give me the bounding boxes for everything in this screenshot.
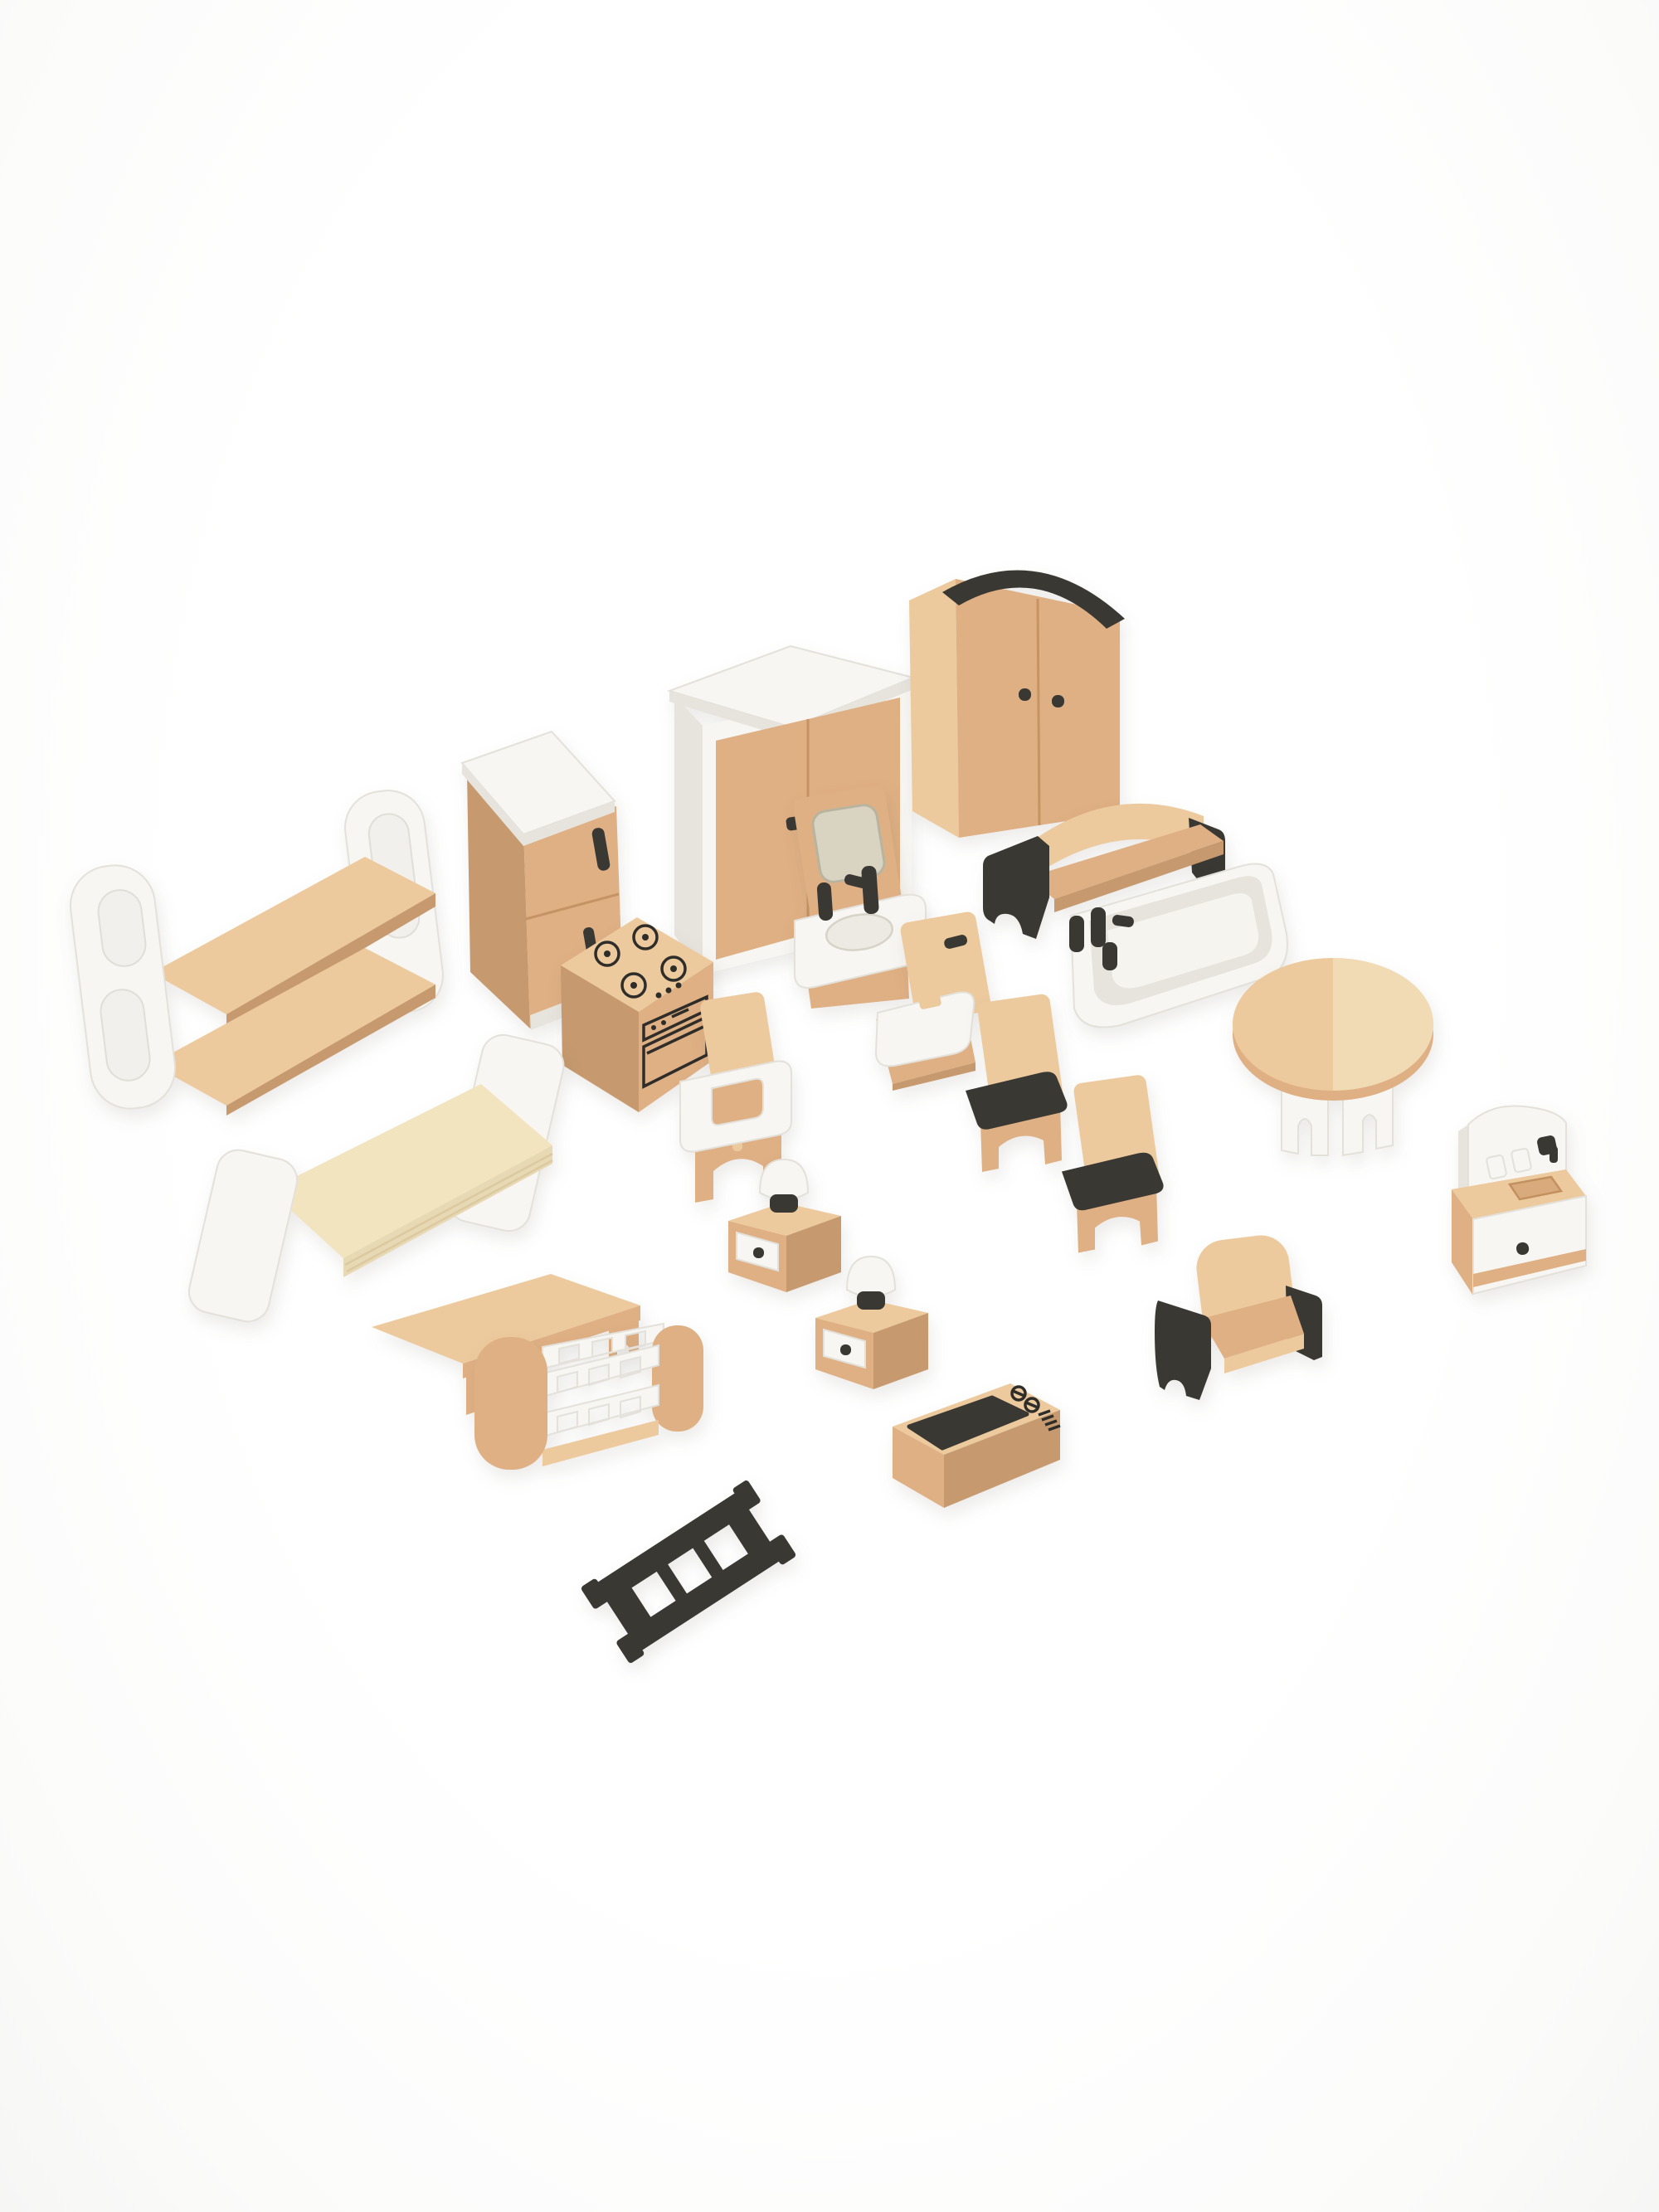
- toy-kitchen-sink: [1440, 1103, 1596, 1300]
- door-knob: [1052, 695, 1064, 707]
- toy-tv: [886, 1375, 1067, 1514]
- lamp-shade: [847, 1257, 895, 1296]
- faucet-spout: [1550, 1146, 1558, 1163]
- toy-nightstand: [810, 1248, 933, 1391]
- tub-knob: [1069, 916, 1084, 952]
- door-knob: [1019, 688, 1031, 701]
- toy-round-table: [1230, 948, 1436, 1159]
- tub-knob: [1102, 942, 1117, 970]
- ladder-graphic: [589, 1491, 788, 1653]
- crib-end: [652, 1325, 703, 1432]
- lamp-base: [770, 1194, 798, 1213]
- sofa-left-end: [983, 836, 1049, 939]
- lamp-base: [857, 1291, 885, 1310]
- toy-crib: [466, 1304, 705, 1511]
- armchair-graphic: [1151, 1234, 1327, 1407]
- ladder-body: [596, 1491, 781, 1651]
- drawer-knob: [753, 1247, 764, 1258]
- sink-knob: [1486, 1155, 1507, 1179]
- bed-graphic: [197, 1033, 569, 1310]
- armchair-left-arm: [1155, 1300, 1211, 1400]
- product-photo-canvas: [0, 0, 1659, 2212]
- toy-bed: [197, 1033, 569, 1310]
- lamp-shade: [760, 1159, 808, 1199]
- toy-ladder: [589, 1491, 788, 1653]
- basin-knob: [816, 882, 833, 921]
- crib-graphic: [466, 1304, 705, 1511]
- bed-footboard: [185, 1146, 301, 1326]
- kitchen-sink-graphic: [1440, 1103, 1596, 1300]
- tv-graphic: [886, 1375, 1067, 1514]
- drawer-knob: [840, 1344, 851, 1355]
- nightstand-graphic: [810, 1248, 933, 1391]
- crib-end: [474, 1337, 547, 1470]
- toy-armchair: [1151, 1234, 1327, 1407]
- round-table-graphic: [1230, 948, 1436, 1159]
- tub-knob: [1091, 907, 1106, 947]
- sink-knob: [1511, 1148, 1532, 1173]
